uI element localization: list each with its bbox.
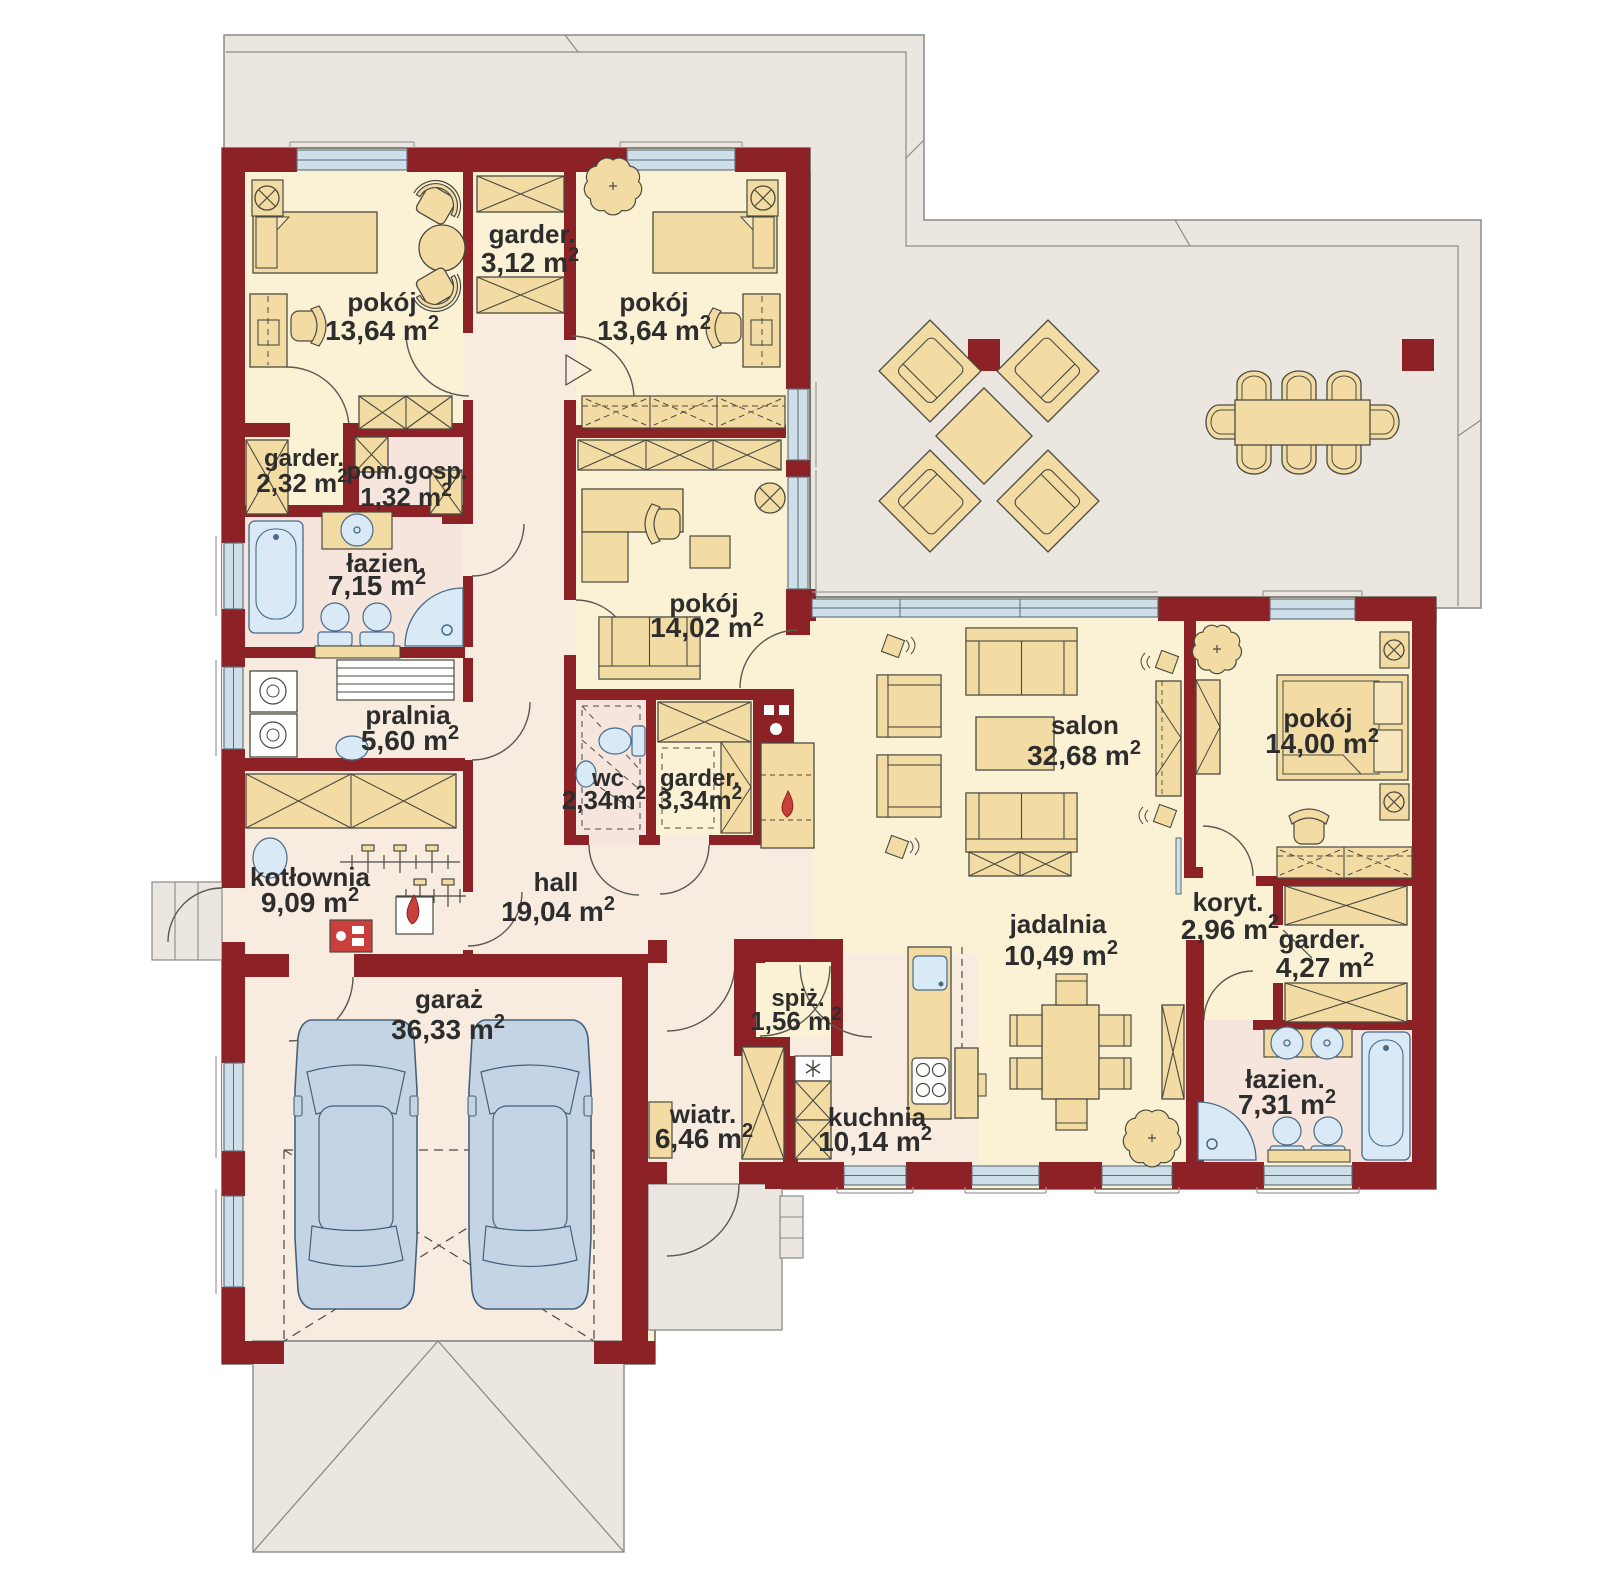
svg-text:salon: salon	[1051, 710, 1119, 740]
svg-text:5,60 m2: 5,60 m2	[361, 722, 459, 756]
svg-text:32,68 m2: 32,68 m2	[1027, 737, 1141, 771]
svg-text:10,49 m2: 10,49 m2	[1004, 937, 1118, 971]
svg-text:6,46 m2: 6,46 m2	[655, 1120, 753, 1154]
svg-text:2,96 m2: 2,96 m2	[1181, 911, 1279, 945]
svg-text:9,09 m2: 9,09 m2	[261, 884, 359, 918]
svg-text:garder.: garder.	[489, 219, 576, 249]
svg-text:3,34m2: 3,34m2	[658, 783, 742, 815]
svg-text:19,04 m2: 19,04 m2	[501, 893, 615, 927]
svg-text:13,64 m2: 13,64 m2	[325, 312, 439, 346]
svg-text:10,14 m2: 10,14 m2	[818, 1123, 932, 1157]
svg-text:7,31 m2: 7,31 m2	[1238, 1086, 1336, 1120]
svg-text:14,00 m2: 14,00 m2	[1265, 725, 1379, 759]
svg-text:1,32 m2: 1,32 m2	[360, 480, 452, 512]
svg-text:pokój: pokój	[619, 287, 688, 317]
svg-text:3,12 m2: 3,12 m2	[481, 244, 579, 278]
svg-text:7,15 m2: 7,15 m2	[328, 567, 426, 601]
svg-text:koryt.: koryt.	[1193, 887, 1264, 917]
svg-text:14,02 m2: 14,02 m2	[650, 609, 764, 643]
svg-text:36,33 m2: 36,33 m2	[391, 1011, 505, 1045]
svg-text:13,64 m2: 13,64 m2	[597, 312, 711, 346]
svg-text:jadalnia: jadalnia	[1009, 909, 1107, 939]
svg-text:2,34m2: 2,34m2	[562, 783, 646, 815]
svg-text:pokój: pokój	[347, 287, 416, 317]
svg-text:4,27 m2: 4,27 m2	[1276, 949, 1374, 983]
svg-text:garaż: garaż	[415, 984, 483, 1014]
svg-text:garder.: garder.	[1279, 924, 1366, 954]
svg-text:1,56 m2: 1,56 m2	[750, 1004, 842, 1036]
svg-text:2,32 m2: 2,32 m2	[256, 466, 348, 498]
svg-text:hall: hall	[534, 867, 579, 897]
